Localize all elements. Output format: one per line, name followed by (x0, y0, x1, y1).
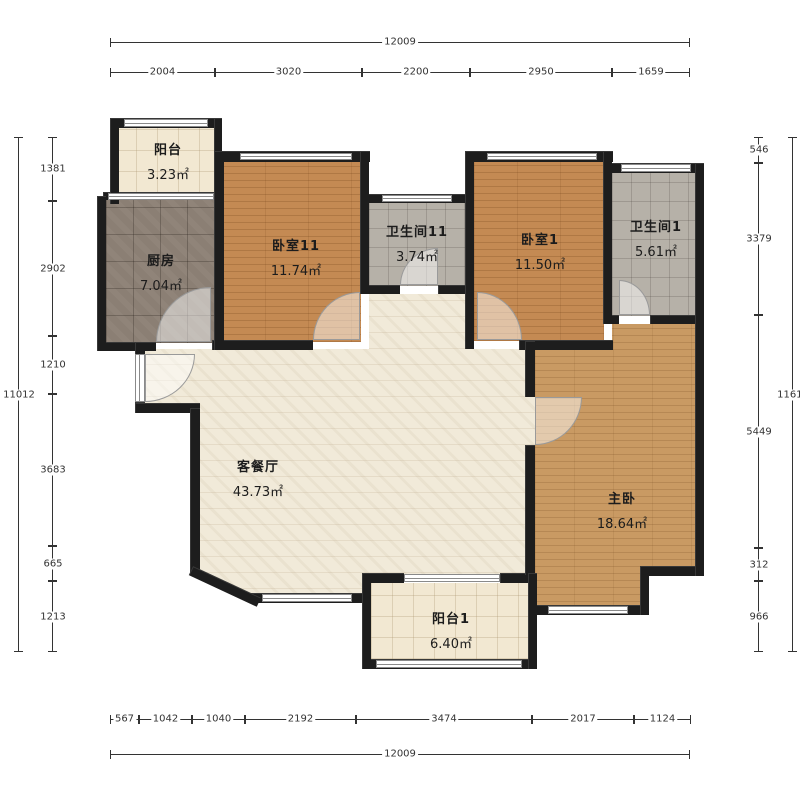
dim-right-segment: 5449 (752, 315, 765, 548)
dim-bottom-segment: 567 (110, 713, 139, 726)
dimension-value: 1381 (38, 164, 67, 175)
window (108, 193, 214, 200)
room-area: 5.61㎡ (630, 241, 682, 260)
dimension-value: 11612 (775, 389, 800, 400)
dimension-value: 5449 (744, 426, 773, 437)
dimension-value: 1213 (38, 611, 67, 622)
dimension-value: 2192 (286, 714, 315, 725)
dimension-value: 1210 (38, 360, 67, 371)
window (376, 660, 522, 668)
dim-left-segment: 2902 (46, 201, 59, 336)
dim-right-segment: 3379 (752, 163, 765, 315)
wall (110, 118, 119, 204)
dimension-value: 546 (747, 145, 770, 156)
dim-left-segment: 3683 (46, 394, 59, 546)
dim-left-segment: 1213 (46, 581, 59, 652)
room-label-bathroom-1: 卫生间15.61㎡ (630, 216, 682, 260)
wall (190, 408, 200, 573)
room-area: 3.74㎡ (386, 246, 448, 265)
wall (214, 151, 224, 350)
window (382, 195, 452, 202)
room-label-bathroom-11: 卫生间113.74㎡ (386, 221, 448, 265)
dim-bottom-total: 12009 (110, 748, 690, 761)
dimension-value: 3020 (274, 67, 303, 78)
dim-top-segment: 2004 (110, 66, 215, 79)
room-area: 6.40㎡ (430, 633, 472, 652)
dim-bottom-segment: 1124 (634, 713, 691, 726)
wall (528, 573, 537, 669)
wall (135, 342, 145, 354)
dimension-value: 2004 (148, 67, 177, 78)
wall (465, 151, 474, 349)
dimension-value: 312 (747, 559, 770, 570)
dimension-value: 665 (41, 558, 64, 569)
wall (97, 196, 106, 351)
dimension-value: 12009 (382, 749, 418, 760)
room-area: 43.73㎡ (233, 481, 283, 500)
dim-bottom-segment: 3474 (356, 713, 532, 726)
dim-left-segment: 1210 (46, 336, 59, 394)
room-name: 卧室11 (271, 235, 321, 254)
room-area: 18.64㎡ (597, 513, 647, 532)
room-label-balcony-tl: 阳台3.23㎡ (147, 139, 189, 183)
dim-top-segment: 2200 (362, 66, 470, 79)
dim-right-segment: 966 (752, 581, 765, 652)
room-name: 阳台1 (430, 608, 472, 627)
wall (362, 573, 371, 669)
dim-top-segment: 1659 (612, 66, 690, 79)
room-area: 7.04㎡ (140, 275, 182, 294)
wall (525, 341, 535, 397)
dimension-value: 2017 (568, 714, 597, 725)
window (404, 574, 500, 582)
entry-door-frame (135, 354, 145, 402)
window (487, 153, 597, 160)
dimension-value: 1659 (636, 67, 665, 78)
room-area: 3.23㎡ (147, 164, 189, 183)
wall (360, 151, 369, 294)
room-name: 客餐厅 (233, 456, 283, 475)
dimension-value: 2902 (38, 263, 67, 274)
room-label-kitchen: 厨房7.04㎡ (140, 250, 182, 294)
dimension-value: 3683 (38, 465, 67, 476)
wall (525, 445, 535, 575)
window (548, 606, 628, 614)
dim-bottom-segment: 2017 (532, 713, 634, 726)
room-label-bedroom-1: 卧室111.50㎡ (515, 229, 565, 273)
dim-right-segment: 546 (752, 137, 765, 163)
dim-bottom-segment: 1042 (139, 713, 192, 726)
dim-left-total: 11012 (12, 137, 25, 652)
room-name: 卧室1 (515, 229, 565, 248)
wall (695, 163, 704, 576)
dim-top-total: 12009 (110, 36, 690, 49)
dimension-value: 3474 (429, 714, 458, 725)
window (621, 164, 691, 172)
dimension-value: 1042 (151, 714, 180, 725)
dimension-value: 3379 (744, 234, 773, 245)
room-name: 主卧 (597, 488, 647, 507)
window (124, 119, 208, 127)
dimension-value: 1040 (204, 714, 233, 725)
wall (212, 340, 313, 350)
room-label-master-bedroom: 主卧18.64㎡ (597, 488, 647, 532)
dim-top-segment: 3020 (215, 66, 362, 79)
wall (603, 151, 612, 324)
dim-right-total: 11612 (786, 137, 799, 652)
dim-bottom-segment: 2192 (245, 713, 356, 726)
dim-left-segment: 1381 (46, 137, 59, 201)
wall (640, 566, 649, 615)
room-label-balcony-1: 阳台16.40㎡ (430, 608, 472, 652)
dimension-value: 966 (747, 611, 770, 622)
room-label-bedroom-11: 卧室1111.74㎡ (271, 235, 321, 279)
dimension-value: 567 (113, 714, 136, 725)
room-area: 11.74㎡ (271, 260, 321, 279)
dim-left-segment: 665 (46, 546, 59, 581)
room-name: 阳台 (147, 139, 189, 158)
room-name: 卫生间1 (630, 216, 682, 235)
dimension-value: 1124 (648, 714, 677, 725)
dimension-value: 2200 (401, 67, 430, 78)
floor-plan-canvas: 阳台3.23㎡厨房7.04㎡卧室1111.74㎡卫生间113.74㎡卧室111.… (0, 0, 800, 800)
dim-bottom-segment: 1040 (192, 713, 245, 726)
room-area: 11.50㎡ (515, 254, 565, 273)
dimension-value: 11012 (1, 389, 37, 400)
dimension-value: 2950 (526, 67, 555, 78)
dim-right-segment: 312 (752, 548, 765, 581)
room-name: 厨房 (140, 250, 182, 269)
window (262, 594, 352, 602)
room-name: 卫生间11 (386, 221, 448, 240)
dimension-value: 12009 (382, 37, 418, 48)
dim-top-segment: 2950 (470, 66, 612, 79)
window (240, 153, 352, 160)
room-label-living-dining: 客餐厅43.73㎡ (233, 456, 283, 500)
